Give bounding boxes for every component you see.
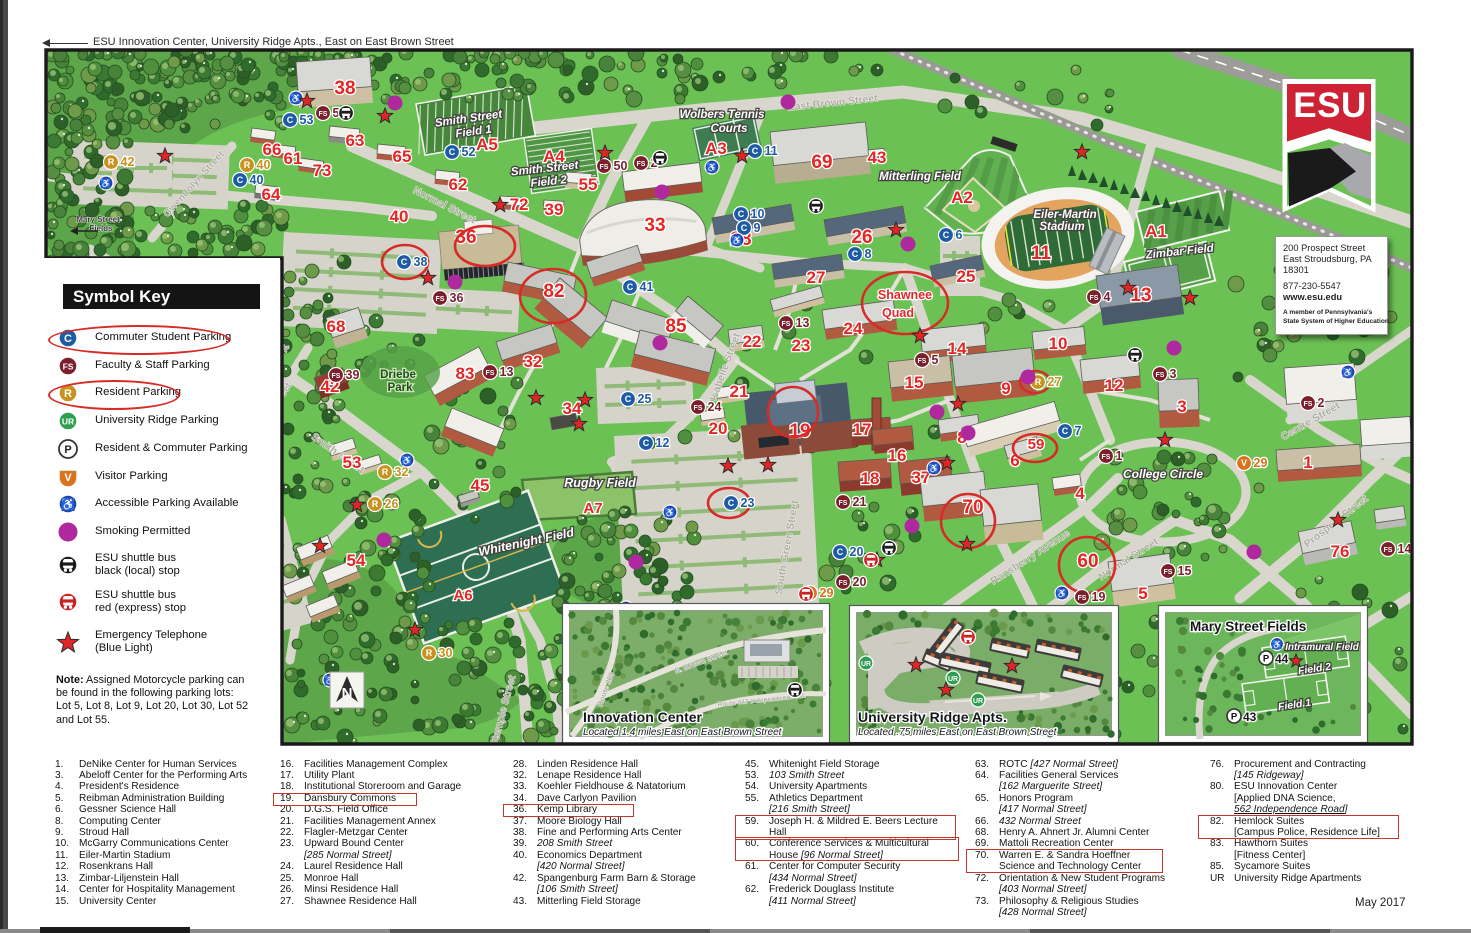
svg-text:21: 21 — [730, 382, 749, 401]
svg-text:FS: FS — [1102, 454, 1111, 461]
svg-text:FS: FS — [1078, 595, 1087, 602]
svg-text:20: 20 — [709, 419, 728, 438]
svg-text:FS: FS — [1090, 295, 1099, 302]
svg-text:C: C — [287, 115, 294, 125]
svg-text:24: 24 — [708, 400, 722, 414]
svg-text:FS: FS — [1304, 401, 1313, 408]
svg-text:P: P — [1263, 654, 1270, 665]
svg-text:13: 13 — [1130, 285, 1151, 306]
svg-text:♿: ♿ — [731, 235, 742, 246]
svg-text:41: 41 — [640, 280, 654, 294]
svg-text:♿: ♿ — [61, 498, 76, 512]
svg-text:FS: FS — [839, 500, 848, 507]
svg-text:♿: ♿ — [664, 507, 675, 518]
svg-text:24: 24 — [844, 319, 863, 338]
svg-text:FS: FS — [1164, 569, 1173, 576]
svg-text:23: 23 — [792, 336, 811, 355]
svg-text:FS: FS — [839, 580, 848, 587]
svg-text:1: 1 — [1116, 449, 1123, 463]
svg-text:12: 12 — [1105, 376, 1124, 395]
svg-text:16: 16 — [888, 446, 907, 465]
svg-text:FS: FS — [63, 362, 74, 372]
svg-text:25: 25 — [638, 392, 652, 406]
svg-text:R: R — [1035, 377, 1042, 387]
svg-text:C: C — [943, 230, 950, 240]
svg-text:C: C — [401, 257, 408, 267]
svg-text:10: 10 — [1049, 334, 1068, 353]
svg-text:60: 60 — [1077, 551, 1098, 572]
svg-text:Located .75 miles East on East: Located .75 miles East on East Brown Str… — [858, 727, 1058, 738]
svg-text:7: 7 — [1075, 424, 1082, 438]
svg-text:3: 3 — [1177, 397, 1186, 416]
svg-text:V: V — [64, 472, 72, 484]
svg-text:9: 9 — [754, 221, 761, 235]
svg-text:2: 2 — [1318, 396, 1325, 410]
svg-text:21: 21 — [853, 495, 867, 509]
svg-text:FS: FS — [637, 161, 646, 168]
svg-text:UR: UR — [62, 417, 74, 427]
svg-text:52: 52 — [462, 145, 476, 159]
svg-text:ESU: ESU — [1293, 86, 1366, 125]
svg-text:13: 13 — [796, 316, 810, 330]
svg-text:26: 26 — [385, 497, 399, 511]
svg-text:C: C — [852, 249, 859, 259]
svg-text:85: 85 — [665, 316, 687, 337]
svg-text:University Ridge Apts.: University Ridge Apts. — [858, 709, 1007, 725]
svg-text:♿: ♿ — [401, 455, 412, 466]
svg-text:Intramural Field: Intramural Field — [1285, 642, 1360, 653]
svg-text:♿: ♿ — [1342, 367, 1353, 378]
svg-text:3: 3 — [1170, 367, 1177, 381]
svg-text:45: 45 — [471, 476, 490, 495]
svg-text:R: R — [372, 499, 379, 509]
svg-text:C: C — [237, 175, 244, 185]
svg-text:A4: A4 — [543, 147, 565, 166]
svg-text:C: C — [728, 498, 735, 508]
svg-text:4: 4 — [1075, 484, 1085, 503]
svg-text:UR: UR — [973, 698, 983, 705]
svg-text:R: R — [108, 157, 115, 167]
svg-text:15: 15 — [1178, 564, 1192, 578]
svg-text:R: R — [382, 467, 389, 477]
svg-text:10: 10 — [751, 207, 765, 221]
svg-text:Eiler-Martin: Eiler-Martin — [1033, 209, 1096, 221]
svg-text:33: 33 — [644, 215, 665, 236]
svg-text:22: 22 — [743, 332, 762, 351]
svg-text:A6: A6 — [453, 587, 472, 604]
svg-text:53: 53 — [300, 113, 314, 127]
svg-text:R: R — [426, 648, 433, 658]
svg-text:FS: FS — [332, 373, 341, 380]
svg-text:UR: UR — [861, 661, 871, 668]
svg-text:8: 8 — [865, 247, 872, 261]
svg-text:R: R — [244, 160, 251, 170]
svg-text:59: 59 — [1028, 436, 1045, 453]
svg-text:64: 64 — [262, 185, 281, 204]
svg-text:C: C — [1062, 426, 1069, 436]
svg-text:FS: FS — [782, 321, 791, 328]
svg-text:Mitterling Field: Mitterling Field — [879, 171, 962, 183]
svg-text:4: 4 — [1104, 290, 1111, 304]
svg-text:17: 17 — [853, 420, 872, 439]
svg-text:26: 26 — [851, 227, 872, 248]
svg-text:38: 38 — [334, 78, 355, 99]
svg-text:19: 19 — [1092, 590, 1106, 604]
svg-text:38: 38 — [414, 255, 428, 269]
svg-text:23: 23 — [741, 496, 755, 510]
svg-text:83: 83 — [456, 364, 475, 383]
svg-text:65: 65 — [393, 147, 412, 166]
svg-text:C: C — [837, 547, 844, 557]
svg-text:73: 73 — [313, 161, 332, 180]
svg-text:62: 62 — [449, 175, 468, 194]
svg-text:C: C — [449, 147, 456, 157]
svg-text:14: 14 — [1398, 542, 1412, 556]
svg-text:5: 5 — [932, 353, 939, 367]
svg-text:11: 11 — [1031, 243, 1052, 264]
svg-text:C: C — [738, 209, 745, 219]
svg-text:P: P — [1231, 712, 1238, 723]
svg-text:College Circle: College Circle — [1123, 467, 1203, 481]
svg-text:72: 72 — [510, 195, 529, 214]
svg-text:FS: FS — [918, 358, 927, 365]
svg-text:20: 20 — [853, 575, 867, 589]
svg-text:FS: FS — [1156, 372, 1165, 379]
svg-text:14: 14 — [948, 339, 967, 358]
svg-text:27: 27 — [1048, 375, 1062, 389]
svg-text:9: 9 — [1001, 379, 1010, 398]
svg-text:A7: A7 — [583, 500, 602, 517]
svg-text:63: 63 — [346, 131, 365, 150]
svg-text:5: 5 — [1138, 584, 1147, 603]
svg-text:Driebe: Driebe — [380, 369, 416, 381]
svg-text:C: C — [625, 394, 632, 404]
svg-text:P: P — [64, 444, 71, 456]
svg-text:69: 69 — [811, 152, 832, 173]
svg-text:66: 66 — [263, 140, 282, 159]
svg-text:29: 29 — [820, 586, 834, 600]
svg-text:Stadium: Stadium — [1039, 221, 1084, 233]
svg-text:20: 20 — [850, 545, 864, 559]
svg-text:Shawnee: Shawnee — [878, 288, 932, 302]
svg-text:53: 53 — [343, 453, 362, 472]
svg-text:♿: ♿ — [1272, 640, 1283, 650]
svg-text:70: 70 — [962, 497, 983, 518]
svg-text:32: 32 — [524, 352, 543, 371]
svg-text:A5: A5 — [476, 135, 498, 154]
svg-text:Courts: Courts — [710, 123, 747, 135]
svg-text:FS: FS — [436, 296, 445, 303]
svg-text:39: 39 — [346, 368, 360, 382]
svg-text:FS: FS — [486, 370, 495, 377]
svg-text:A3: A3 — [705, 139, 727, 158]
svg-text:Wolbers Tennis: Wolbers Tennis — [680, 109, 765, 121]
svg-text:76: 76 — [1331, 542, 1350, 561]
svg-text:18: 18 — [861, 469, 880, 488]
svg-text:♿: ♿ — [706, 162, 717, 173]
svg-text:39: 39 — [545, 200, 564, 219]
svg-text:82: 82 — [543, 281, 564, 302]
svg-text:FS: FS — [1384, 547, 1393, 554]
svg-text:30: 30 — [439, 646, 453, 660]
svg-text:V: V — [1241, 458, 1247, 468]
svg-text:Located 1.4 miles East on East: Located 1.4 miles East on East Brown Str… — [583, 727, 783, 738]
svg-text:40: 40 — [250, 173, 264, 187]
svg-text:44: 44 — [1275, 652, 1289, 666]
svg-text:36: 36 — [450, 291, 464, 305]
svg-text:♿: ♿ — [928, 463, 939, 474]
svg-text:27: 27 — [807, 268, 826, 287]
svg-text:61: 61 — [284, 149, 303, 168]
svg-text:43: 43 — [868, 148, 887, 167]
svg-text:15: 15 — [905, 373, 924, 392]
svg-text:40: 40 — [257, 158, 271, 172]
svg-text:FS: FS — [600, 164, 609, 171]
svg-text:68: 68 — [327, 317, 346, 336]
svg-text:1: 1 — [1303, 453, 1312, 472]
svg-text:43: 43 — [1243, 710, 1257, 724]
svg-text:12: 12 — [656, 436, 670, 450]
svg-text:Innovation Center: Innovation Center — [583, 709, 703, 725]
svg-text:50: 50 — [614, 159, 628, 173]
svg-text:N: N — [342, 685, 353, 702]
svg-text:Rugby Field: Rugby Field — [564, 476, 636, 490]
svg-text:A1: A1 — [1145, 222, 1167, 241]
svg-text:Park: Park — [388, 382, 414, 394]
svg-text:40: 40 — [390, 207, 409, 226]
svg-text:Mary Street: Mary Street — [76, 215, 120, 224]
svg-text:55: 55 — [579, 175, 598, 194]
svg-text:54: 54 — [347, 551, 366, 570]
svg-text:FS: FS — [694, 405, 703, 412]
svg-text:Mary Street Fields: Mary Street Fields — [1190, 619, 1306, 634]
svg-text:C: C — [752, 146, 759, 156]
svg-text:A2: A2 — [951, 188, 973, 207]
svg-text:Quad: Quad — [882, 306, 914, 320]
svg-text:♿: ♿ — [1056, 588, 1067, 599]
svg-text:C: C — [643, 438, 650, 448]
svg-text:UR: UR — [948, 676, 958, 683]
svg-text:42: 42 — [121, 155, 135, 169]
svg-text:11: 11 — [765, 144, 778, 158]
svg-text:29: 29 — [1254, 456, 1268, 470]
svg-text:6: 6 — [956, 228, 963, 242]
svg-text:25: 25 — [957, 267, 976, 286]
svg-text:13: 13 — [500, 365, 514, 379]
svg-text:C: C — [741, 223, 748, 233]
svg-text:FS: FS — [319, 111, 328, 118]
svg-text:♿: ♿ — [100, 178, 111, 189]
svg-text:C: C — [627, 282, 634, 292]
